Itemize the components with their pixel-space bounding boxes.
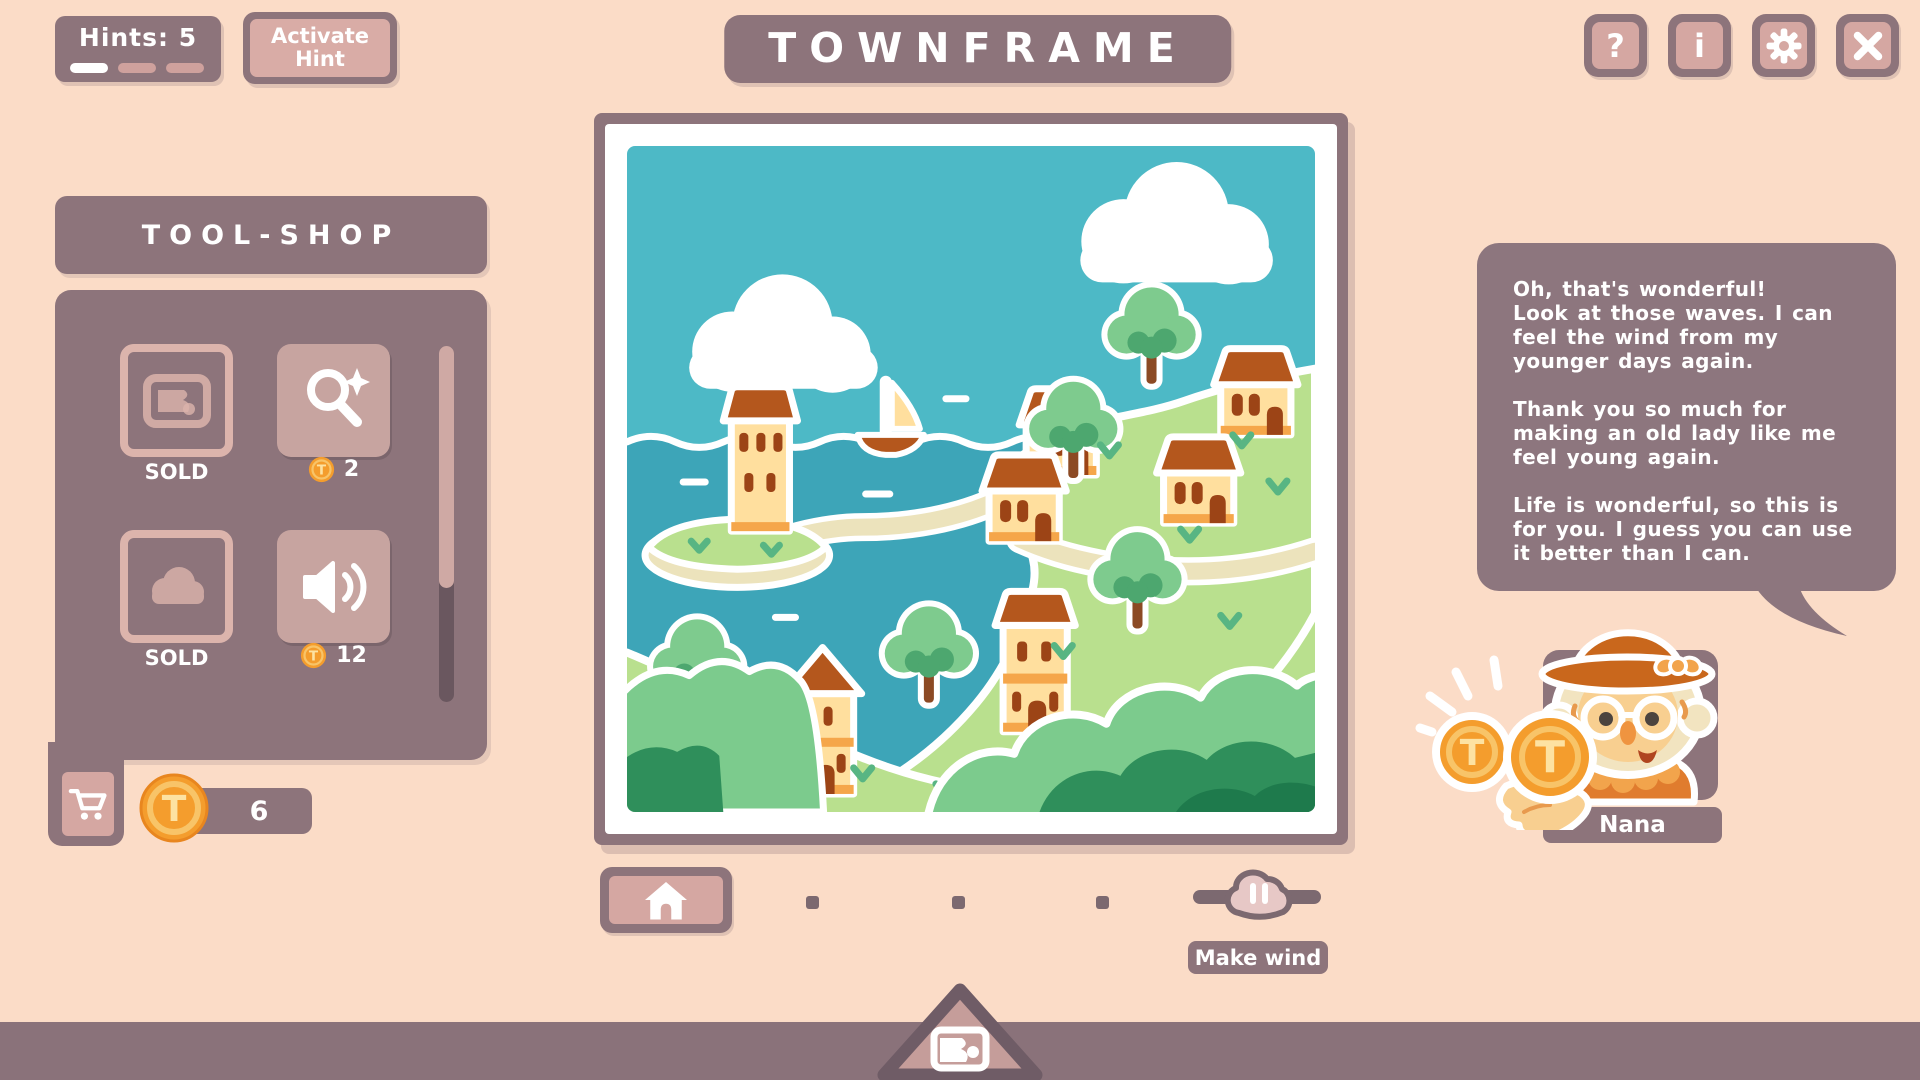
speaker-icon — [297, 555, 371, 619]
magnifier-sparkle-icon — [295, 362, 373, 440]
shop-item-price: 12 — [336, 643, 367, 668]
coin-icon: T — [300, 642, 327, 669]
coin-icon: T — [308, 456, 335, 483]
hint-meter-segment — [166, 63, 204, 73]
tall-house — [995, 591, 1075, 731]
house — [1157, 437, 1241, 523]
shop-item-picture-sold — [120, 344, 233, 457]
shop-item-magnifier[interactable] — [277, 344, 390, 457]
cart-tab — [48, 742, 124, 846]
tool-shop-header: TOOL-SHOP — [55, 196, 487, 274]
svg-text:T: T — [309, 648, 319, 664]
game-title: TOWNFRAME — [724, 15, 1231, 83]
shop-item-status: SOLD — [120, 646, 233, 670]
shop-item-speaker[interactable] — [277, 530, 390, 643]
help-button[interactable]: ? — [1584, 14, 1647, 77]
dialogue-paragraph: Life is wonderful, so this is for you. I… — [1513, 493, 1860, 565]
coin-balance-value: 6 — [216, 796, 269, 827]
make-wind-button[interactable] — [1221, 865, 1295, 925]
game-title-text: TOWNFRAME — [768, 15, 1187, 81]
coin-icon: T — [138, 772, 210, 844]
shop-item-cloud-sold — [120, 530, 233, 643]
close-icon — [1850, 28, 1886, 64]
hints-count-label: Hints: 5 — [55, 16, 221, 52]
pager-dot — [1096, 896, 1109, 909]
home-button[interactable] — [600, 867, 732, 933]
home-icon — [639, 877, 693, 923]
shop-item-price-row: T 2 — [277, 456, 390, 483]
hint-meter — [70, 63, 204, 73]
svg-text:T: T — [317, 462, 327, 478]
hint-meter-segment — [70, 63, 108, 73]
hints-status-box: Hints: 5 — [55, 16, 221, 82]
cloud-icon — [141, 561, 213, 613]
shop-item-price-row: T 12 — [277, 642, 390, 669]
activate-hint-button[interactable]: Activate Hint — [243, 12, 397, 84]
shop-scrollbar-thumb[interactable] — [439, 346, 454, 588]
picture-icon — [142, 372, 212, 430]
info-icon: i — [1694, 27, 1705, 65]
nana-character: T T — [1410, 600, 1740, 830]
hat-bow-icon — [1653, 655, 1704, 678]
svg-text:T: T — [1535, 732, 1565, 783]
activate-hint-label: Activate Hint — [260, 25, 380, 71]
close-button[interactable] — [1836, 14, 1899, 77]
tool-shop-panel: SOLD T 2 SOLD — [55, 290, 487, 760]
coin-icon: T — [1507, 714, 1593, 800]
tower — [723, 387, 797, 531]
hint-meter-segment — [118, 63, 156, 73]
dialogue-bubble-tail — [1735, 586, 1860, 641]
house — [982, 455, 1066, 541]
dialogue-bubble: Oh, that's wonderful! Look at those wave… — [1477, 243, 1896, 591]
open-gallery-button[interactable] — [872, 980, 1048, 1080]
pager-dot — [952, 896, 965, 909]
town-scene[interactable] — [627, 146, 1315, 812]
make-wind-label: Make wind — [1188, 941, 1328, 974]
dialogue-paragraph: Oh, that's wonderful! Look at those wave… — [1513, 277, 1860, 373]
gear-icon — [1764, 26, 1804, 66]
settings-button[interactable] — [1752, 14, 1815, 77]
shop-scrollbar-track — [439, 346, 454, 702]
house — [1214, 349, 1298, 435]
puzzle-frame — [594, 113, 1348, 845]
pager-dot — [806, 896, 819, 909]
cart-icon — [68, 784, 108, 824]
cart-button[interactable] — [62, 772, 114, 836]
dialogue-paragraph: Thank you so much for making an old lady… — [1513, 397, 1860, 469]
tool-shop-title: TOOL-SHOP — [142, 220, 401, 251]
town-scene-illustration — [627, 146, 1315, 812]
svg-text:T: T — [162, 789, 187, 830]
svg-text:T: T — [1460, 733, 1485, 774]
shop-item-price: 2 — [344, 457, 359, 482]
info-button[interactable]: i — [1668, 14, 1731, 77]
shop-item-status: SOLD — [120, 460, 233, 484]
coin-icon: T — [1436, 716, 1508, 788]
help-icon: ? — [1606, 27, 1625, 65]
